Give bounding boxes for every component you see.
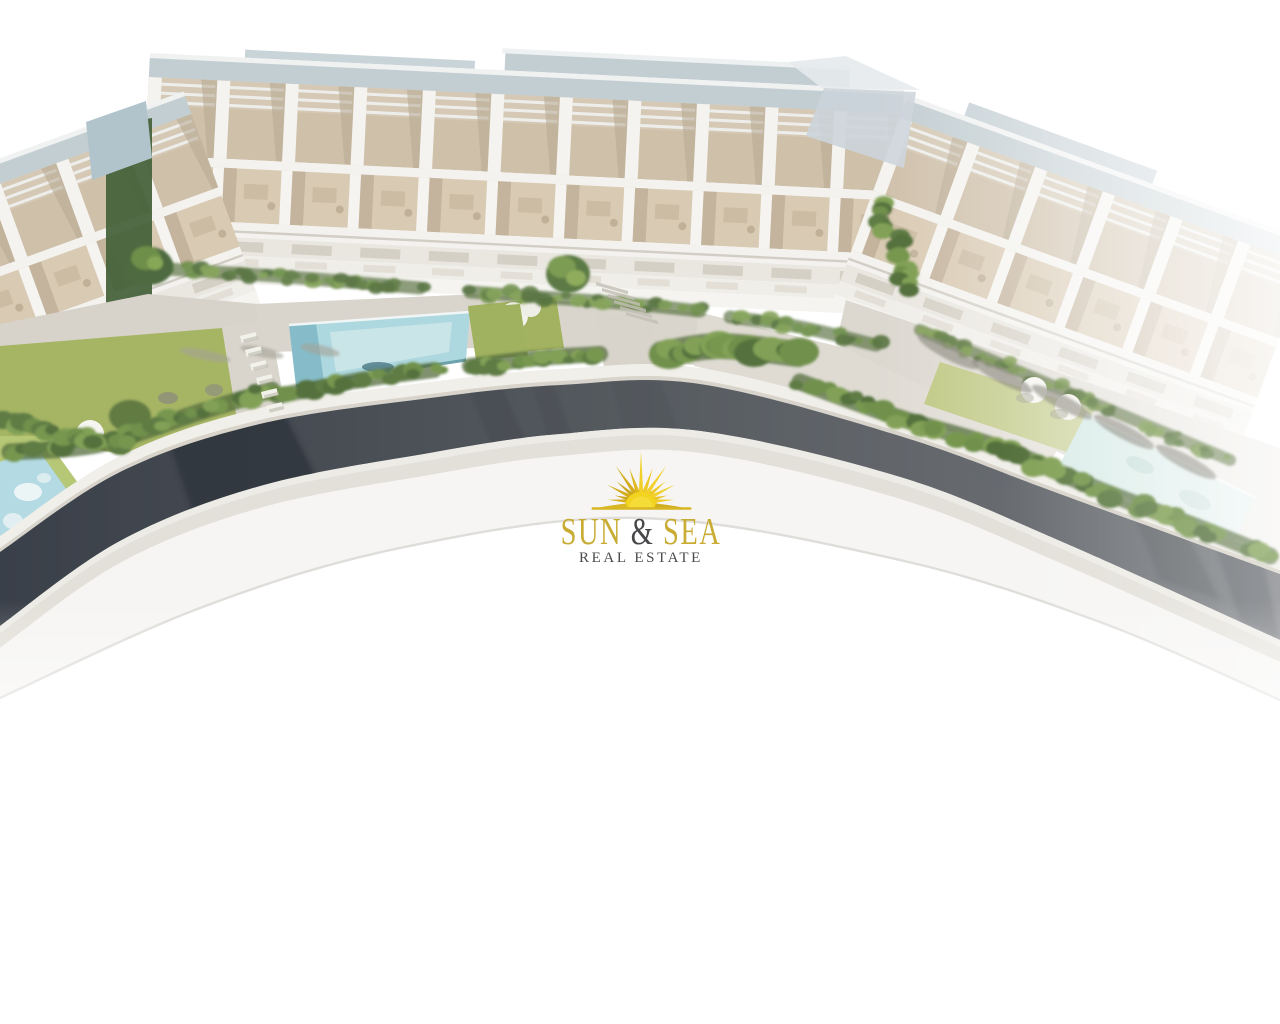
svg-text:SUN & SEA: SUN & SEA (561, 511, 722, 553)
svg-text:REAL ESTATE: REAL ESTATE (579, 550, 703, 566)
